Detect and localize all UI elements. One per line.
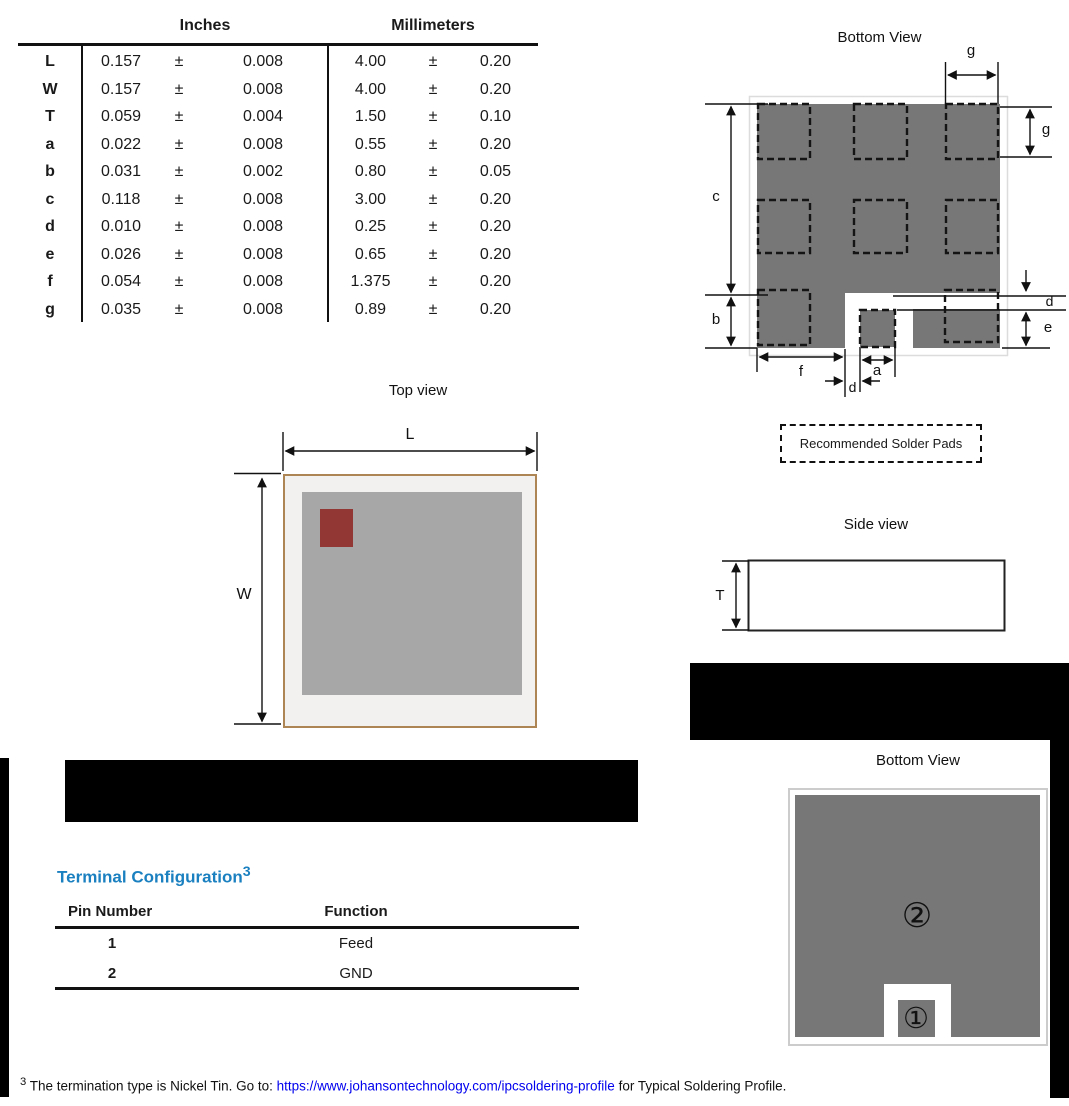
dim-label-f: f [792,364,810,380]
dim-label-g-right: g [1038,122,1054,138]
side-view-diagram: Side view T [710,510,1010,640]
dim-label-L: L [401,427,419,443]
dim-label-c: c [707,189,725,205]
bottom-view-pins-diagram: Bottom View ② ① [760,745,1055,1055]
pin-table-rule-bottom [55,987,579,990]
pin-table-header-pin-number: Pin Number [68,903,152,920]
dim-label-W: W [233,587,255,603]
dim-table-header-inches: Inches [143,17,267,35]
redacted-center-bar [65,760,638,822]
redacted-left-strip [0,758,9,1097]
bottom-view-pads-title: Bottom View [690,29,1069,46]
dim-row-label: b [18,158,82,186]
dim-label-T: T [712,588,728,604]
dim-label-e: e [1040,320,1056,336]
pin-table-row-pin: 2 [77,964,147,984]
top-view-drawing [230,375,560,740]
side-view-title: Side view [776,516,976,533]
dim-label-d-right: d [1042,294,1057,308]
footnote-text-post: for Typical Soldering Profile. [615,1079,787,1094]
dim-label-d-bottom: d [845,379,860,395]
terminal-configuration-heading-text: Terminal Configuration [57,868,243,887]
terminal-configuration-heading-sup: 3 [243,864,251,880]
pin-table-header-function: Function [281,903,431,920]
dim-row-label: d [18,213,82,241]
bottom-view-pins-title: Bottom View [793,752,1043,769]
dim-label-a: a [868,363,886,379]
pin-1-symbol: ① [891,1003,941,1035]
dim-row-label: c [18,186,82,214]
top-view-title: Top view [338,382,498,399]
pin-table-rule-top [55,926,579,929]
dim-label-b: b [707,312,725,328]
footnote-link[interactable]: https://www.johansontechnology.com/ipcso… [277,1079,615,1094]
pin-table-row-function: Feed [281,934,431,954]
datasheet-page: Inches Millimeters L0.157±0.0084.00±0.20… [0,0,1069,1106]
pin-table-row-function: GND [281,964,431,984]
dim-row-label: g [18,296,82,324]
dim-table-top-rule [18,43,538,46]
redacted-right-top-bar [690,663,1069,740]
dim-row-label: f [18,268,82,296]
bottom-view-pads-drawing [690,25,1069,405]
dim-row-label: L [18,48,82,76]
terminal-configuration-heading: Terminal Configuration3 [57,864,251,888]
pin-table-row-pin: 1 [77,934,147,954]
dim-row-label: a [18,131,82,159]
footnote: 3 The termination type is Nickel Tin. Go… [20,1076,1040,1094]
recommended-solder-pads-note: Recommended Solder Pads [780,424,982,463]
dim-row-label: T [18,103,82,131]
bottom-view-pads-diagram: Bottom View g g c b f a d d e [690,25,1069,405]
dimension-table: L0.157±0.0084.00±0.20 W0.157±0.0084.00±0… [18,48,538,323]
dim-table-header-millimeters: Millimeters [365,17,501,35]
dim-label-g-top: g [962,43,980,59]
dim-row-label: e [18,241,82,269]
top-view-diagram: Top view L W [230,375,560,740]
footnote-text-pre: The termination type is Nickel Tin. Go t… [26,1079,276,1094]
dim-row-label: W [18,76,82,104]
pin-2-symbol: ② [892,897,942,935]
